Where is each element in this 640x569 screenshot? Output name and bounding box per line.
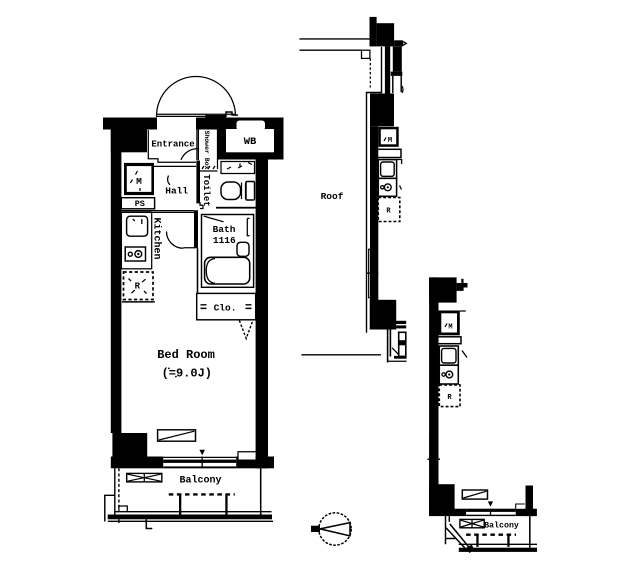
svg-text:R: R — [135, 281, 141, 291]
svg-text:Shower Box: Shower Box — [203, 130, 210, 169]
svg-text:M: M — [448, 324, 452, 332]
svg-text:WB: WB — [244, 136, 257, 148]
svg-text:R: R — [447, 394, 452, 402]
svg-text:Roof: Roof — [321, 191, 344, 202]
svg-text:Kitchen: Kitchen — [150, 217, 162, 259]
svg-text:M: M — [388, 137, 392, 145]
svg-text:Toilet: Toilet — [201, 174, 211, 206]
svg-text:1116: 1116 — [213, 235, 236, 246]
svg-text:R: R — [386, 208, 391, 216]
svg-text:Balcony: Balcony — [484, 520, 519, 530]
svg-text:Hall: Hall — [165, 186, 188, 197]
svg-text:Bath: Bath — [213, 224, 236, 235]
svg-text:PS: PS — [135, 199, 145, 209]
svg-text:M: M — [136, 176, 142, 187]
svg-text:Entrance: Entrance — [151, 140, 194, 150]
svg-text:Balcony: Balcony — [179, 475, 221, 487]
svg-text:Bed Room: Bed Room — [157, 348, 215, 362]
svg-text:Clo.: Clo. — [214, 302, 237, 313]
